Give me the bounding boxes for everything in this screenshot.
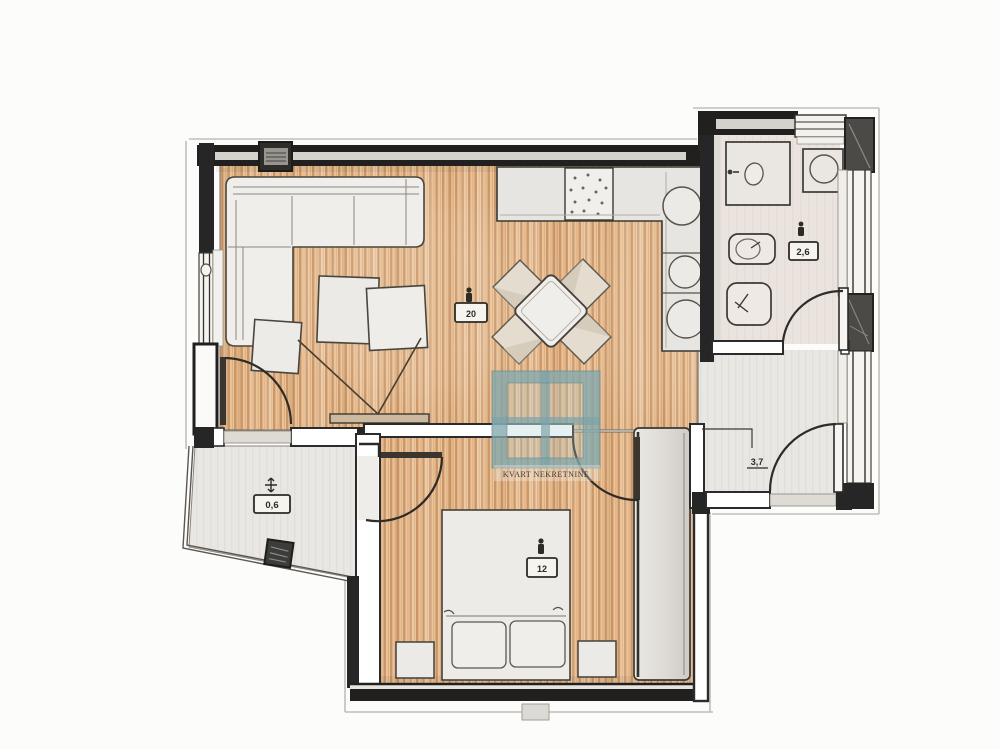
svg-text:2,6: 2,6 — [796, 247, 809, 258]
svg-text:KVART NEKRETNINE: KVART NEKRETNINE — [503, 470, 590, 479]
svg-text:0,6: 0,6 — [265, 500, 278, 511]
svg-text:3,7: 3,7 — [751, 457, 764, 467]
svg-text:20: 20 — [466, 309, 476, 319]
svg-text:12: 12 — [537, 564, 547, 574]
